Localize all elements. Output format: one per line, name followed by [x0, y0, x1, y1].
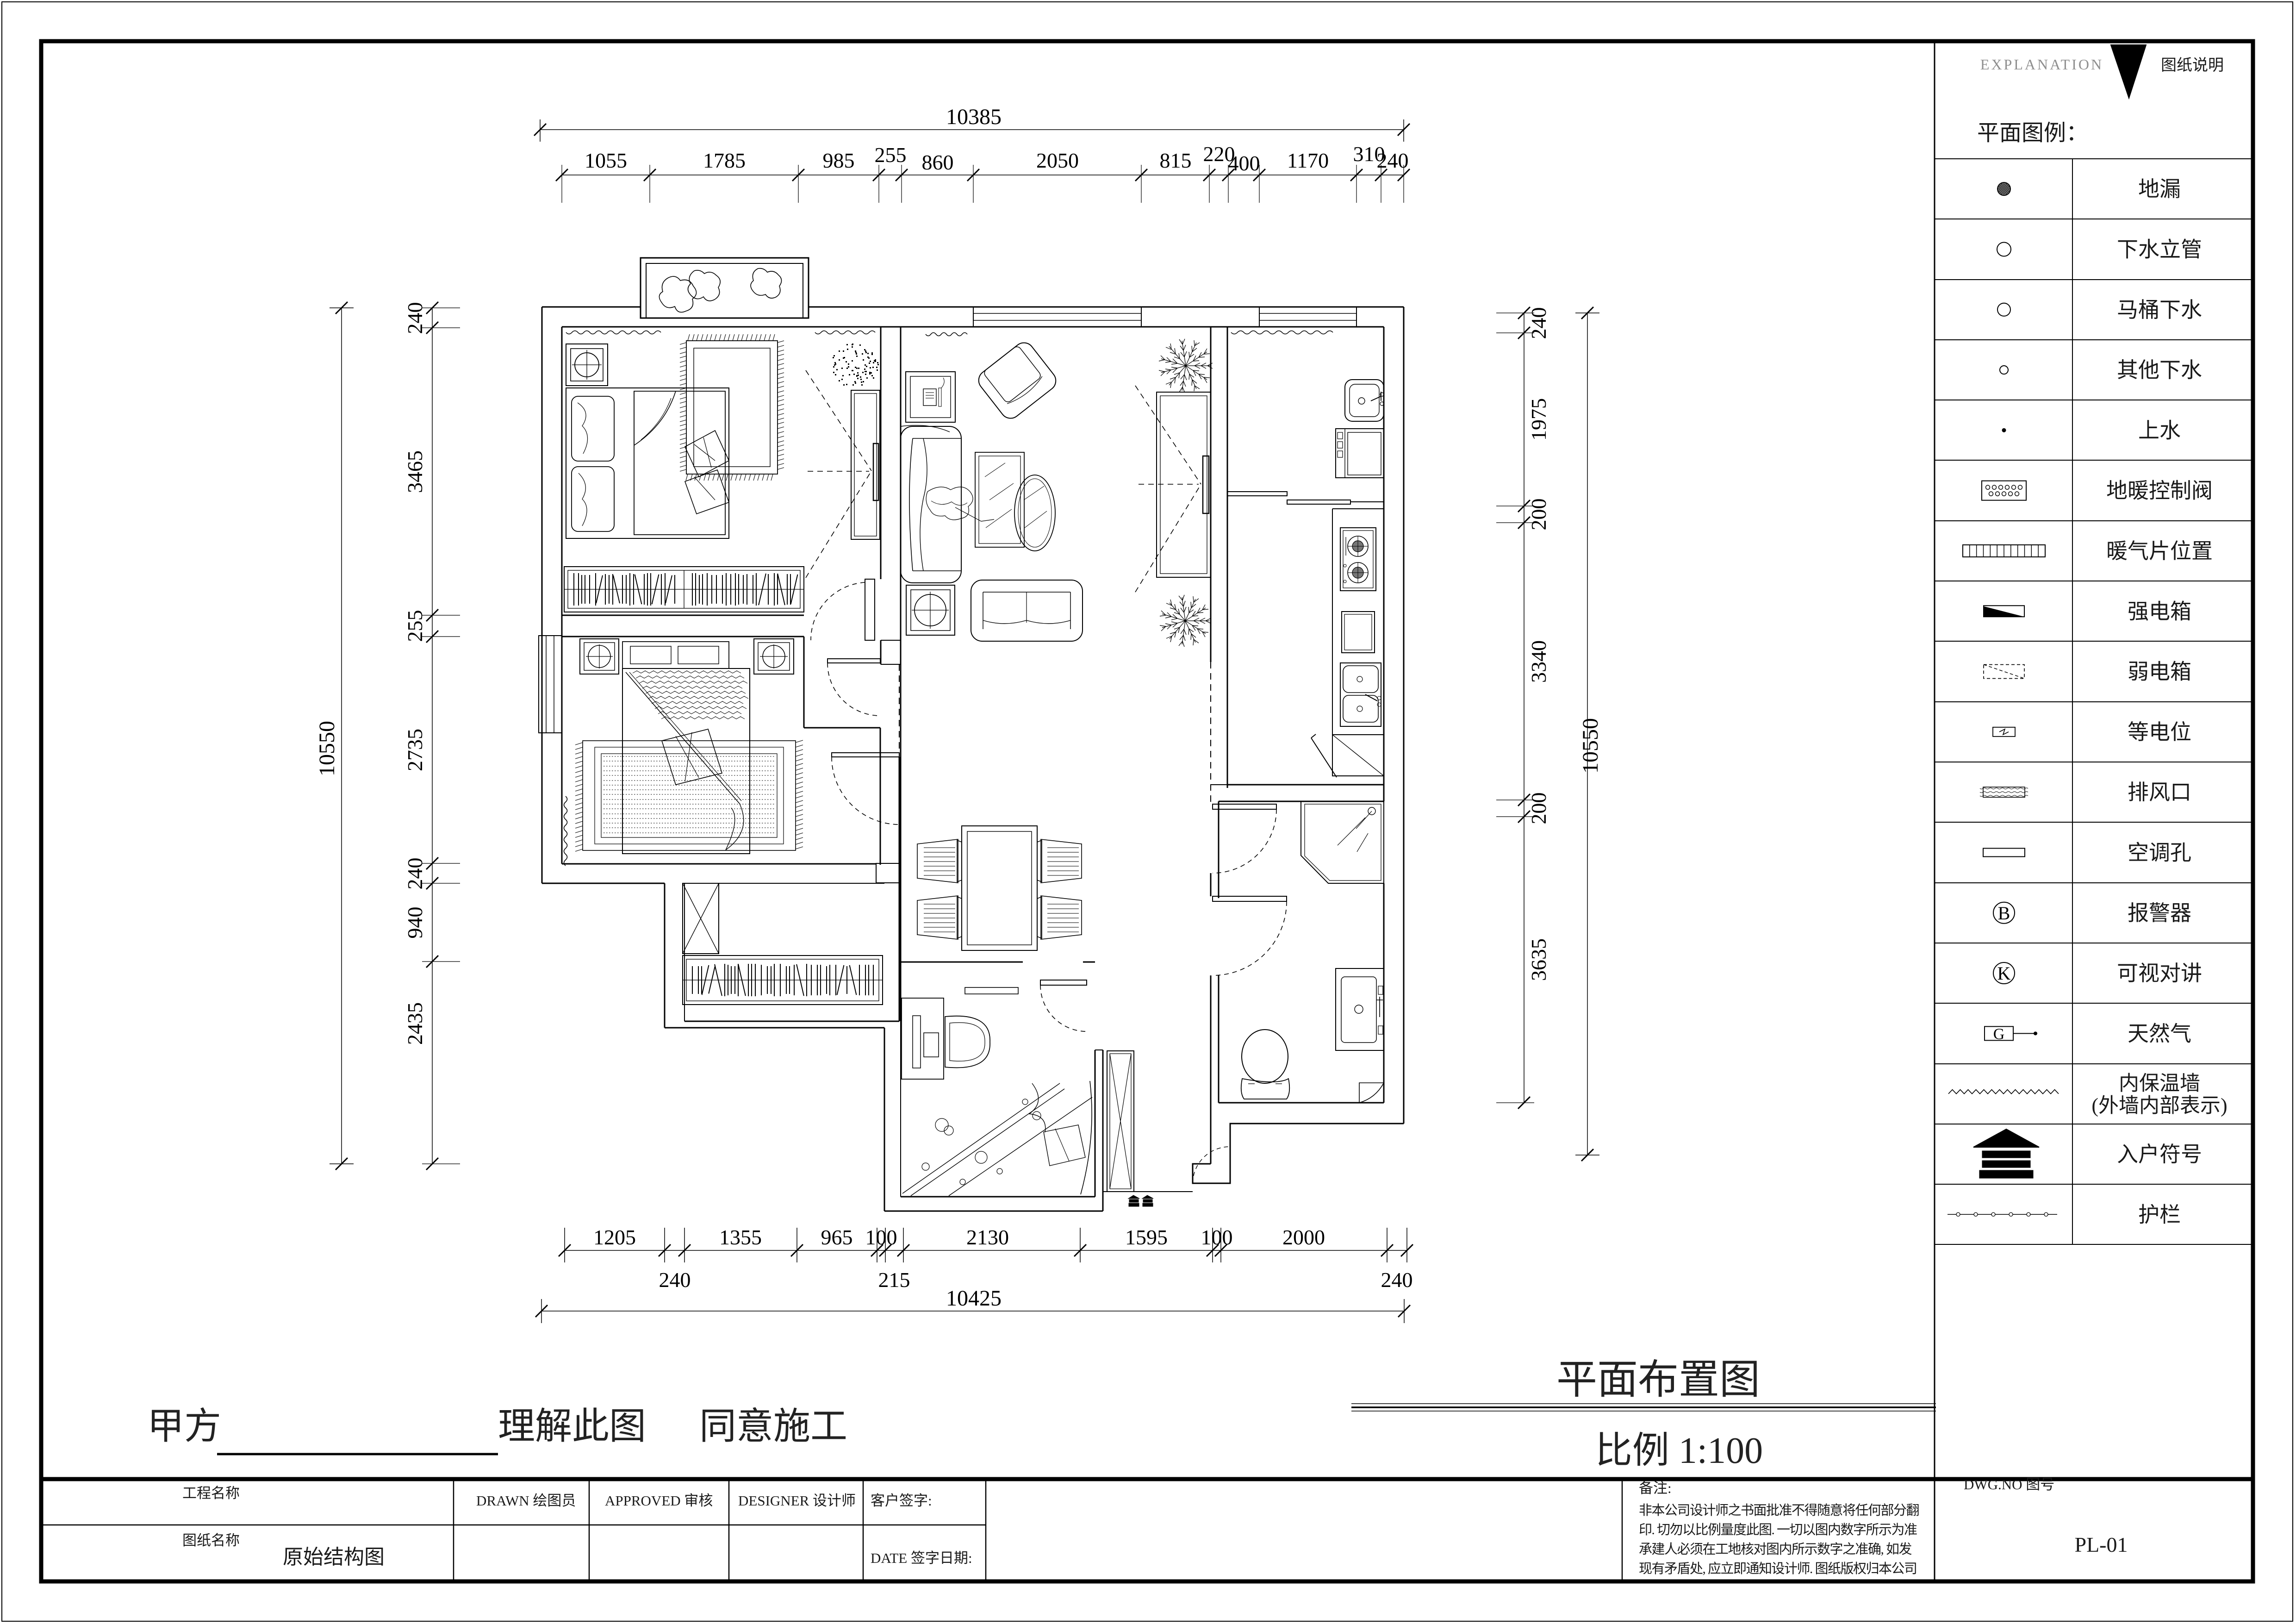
svg-text:2000: 2000 — [1282, 1225, 1325, 1249]
svg-text:10385: 10385 — [946, 105, 1002, 129]
svg-text:1170: 1170 — [1287, 149, 1329, 172]
svg-text:10550: 10550 — [1578, 718, 1603, 774]
svg-text:(外墙内部表示): (外墙内部表示) — [2091, 1094, 2227, 1117]
svg-text:DRAWN 绘图员: DRAWN 绘图员 — [476, 1493, 576, 1509]
svg-text:2435: 2435 — [403, 1002, 427, 1045]
svg-text:240: 240 — [1377, 149, 1409, 172]
svg-text:2050: 2050 — [1036, 149, 1079, 172]
svg-text:215: 215 — [878, 1268, 910, 1292]
svg-text:甲方: 甲方 — [147, 1406, 221, 1447]
svg-text:2735: 2735 — [403, 729, 427, 771]
svg-text:3340: 3340 — [1527, 640, 1550, 683]
svg-text:PL-01: PL-01 — [2075, 1533, 2128, 1556]
svg-text:比例 1:100: 比例 1:100 — [1595, 1430, 1763, 1471]
svg-text:上水: 上水 — [2138, 418, 2181, 442]
svg-text:等电位: 等电位 — [2128, 720, 2191, 744]
svg-text:DATE 签字日期:: DATE 签字日期: — [871, 1550, 972, 1566]
svg-text:现有矛盾处, 应立即通知设计师. 图纸版权归本公司: 现有矛盾处, 应立即通知设计师. 图纸版权归本公司 — [1639, 1561, 1917, 1576]
svg-text:K: K — [1997, 963, 2011, 984]
svg-text:平面图例：: 平面图例： — [1977, 121, 2088, 145]
svg-text:同意施工: 同意施工 — [699, 1406, 847, 1447]
svg-text:240: 240 — [403, 302, 427, 334]
svg-text:DWG.NO 图号: DWG.NO 图号 — [1964, 1476, 2054, 1493]
svg-text:备注:: 备注: — [1639, 1480, 1672, 1496]
svg-text:工程名称: 工程名称 — [182, 1485, 240, 1501]
svg-text:理解此图: 理解此图 — [498, 1406, 646, 1447]
svg-text:2130: 2130 — [966, 1225, 1009, 1249]
svg-text:承建人必须在工地核对图内所示数字之准确, 如发: 承建人必须在工地核对图内所示数字之准确, 如发 — [1639, 1542, 1912, 1557]
svg-text:240: 240 — [659, 1268, 691, 1292]
svg-text:暖气片位置: 暖气片位置 — [2106, 539, 2213, 563]
svg-text:图纸名称: 图纸名称 — [182, 1532, 240, 1549]
svg-text:255: 255 — [875, 143, 907, 167]
svg-text:100: 100 — [1201, 1225, 1233, 1249]
svg-text:1975: 1975 — [1527, 398, 1550, 441]
svg-text:DESIGNER 设计师: DESIGNER 设计师 — [738, 1493, 856, 1509]
svg-text:强电箱: 强电箱 — [2128, 600, 2191, 623]
svg-text:非本公司设计师之书面批准不得随意将任何部分翻: 非本公司设计师之书面批准不得随意将任何部分翻 — [1639, 1503, 1919, 1518]
svg-text:下水立管: 下水立管 — [2117, 237, 2202, 261]
svg-text:200: 200 — [1527, 499, 1550, 531]
svg-text:可视对讲: 可视对讲 — [2117, 962, 2202, 985]
svg-text:地暖控制阀: 地暖控制阀 — [2106, 479, 2213, 503]
svg-text:10550: 10550 — [315, 721, 339, 776]
svg-text:报警器: 报警器 — [2128, 901, 2191, 925]
svg-text:入户符号: 入户符号 — [2117, 1143, 2202, 1166]
svg-text:客户签字:: 客户签字: — [871, 1493, 932, 1509]
svg-text:1785: 1785 — [703, 149, 746, 172]
svg-text:815: 815 — [1160, 149, 1192, 172]
svg-text:985: 985 — [823, 149, 855, 172]
svg-text:240: 240 — [1527, 307, 1550, 339]
svg-text:G: G — [1993, 1025, 2005, 1043]
svg-text:图纸说明: 图纸说明 — [2161, 56, 2224, 74]
svg-text:内保温墙: 内保温墙 — [2119, 1072, 2200, 1095]
svg-text:天然气: 天然气 — [2128, 1022, 2191, 1045]
svg-text:EXPLANATION: EXPLANATION — [1980, 56, 2103, 73]
svg-text:200: 200 — [1527, 793, 1550, 824]
svg-text:平面布置图: 平面布置图 — [1556, 1358, 1760, 1403]
svg-text:255: 255 — [403, 610, 427, 642]
svg-text:1355: 1355 — [719, 1225, 762, 1249]
svg-text:3465: 3465 — [403, 450, 427, 493]
svg-text:空调孔: 空调孔 — [2128, 841, 2191, 864]
svg-text:1055: 1055 — [585, 149, 627, 172]
svg-text:护栏: 护栏 — [2138, 1203, 2181, 1226]
svg-text:1595: 1595 — [1125, 1225, 1168, 1249]
svg-text:排风口: 排风口 — [2128, 781, 2191, 804]
svg-text:印. 切勿以比例量度此图. 一切以图内数字所示为准: 印. 切勿以比例量度此图. 一切以图内数字所示为准 — [1639, 1522, 1917, 1537]
svg-text:100: 100 — [865, 1225, 897, 1249]
svg-text:400: 400 — [1228, 151, 1260, 175]
svg-text:地漏: 地漏 — [2138, 177, 2181, 201]
svg-text:APPROVED 审核: APPROVED 审核 — [605, 1493, 713, 1509]
svg-text:3635: 3635 — [1527, 938, 1550, 981]
svg-text:B: B — [1998, 903, 2010, 924]
svg-text:240: 240 — [403, 858, 427, 890]
svg-text:弱电箱: 弱电箱 — [2128, 660, 2191, 684]
svg-text:其他下水: 其他下水 — [2117, 358, 2202, 382]
svg-text:240: 240 — [1381, 1268, 1413, 1292]
svg-text:1205: 1205 — [593, 1225, 636, 1249]
svg-text:原始结构图: 原始结构图 — [283, 1546, 385, 1568]
svg-text:965: 965 — [821, 1225, 853, 1249]
svg-text:860: 860 — [922, 150, 954, 174]
svg-text:马桶下水: 马桶下水 — [2117, 298, 2202, 322]
svg-text:940: 940 — [403, 907, 427, 939]
svg-text:10425: 10425 — [946, 1286, 1002, 1311]
